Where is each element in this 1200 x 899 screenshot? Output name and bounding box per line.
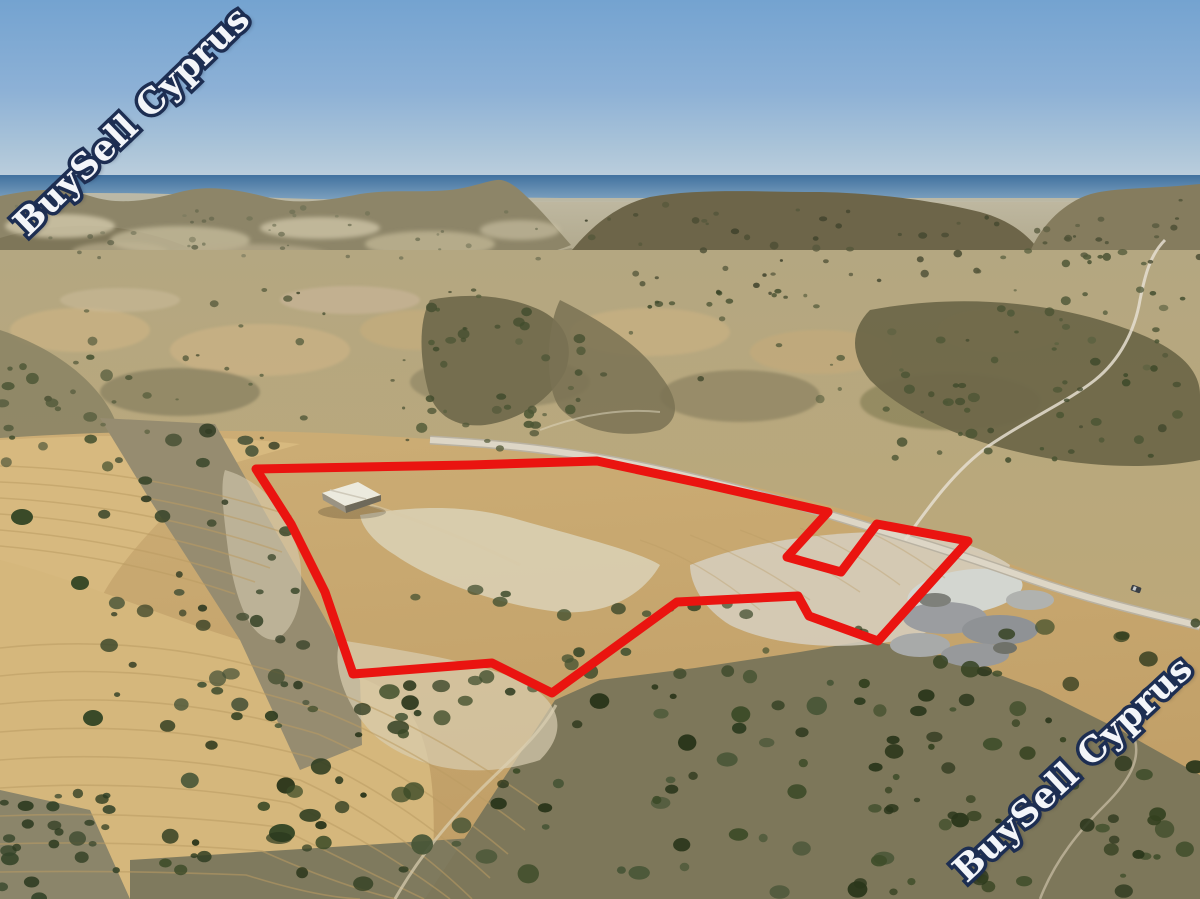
terrain-scene (0, 0, 1200, 899)
aerial-photo: BuySell Cyprus BuySell Cyprus BuySell Cy… (0, 0, 1200, 899)
